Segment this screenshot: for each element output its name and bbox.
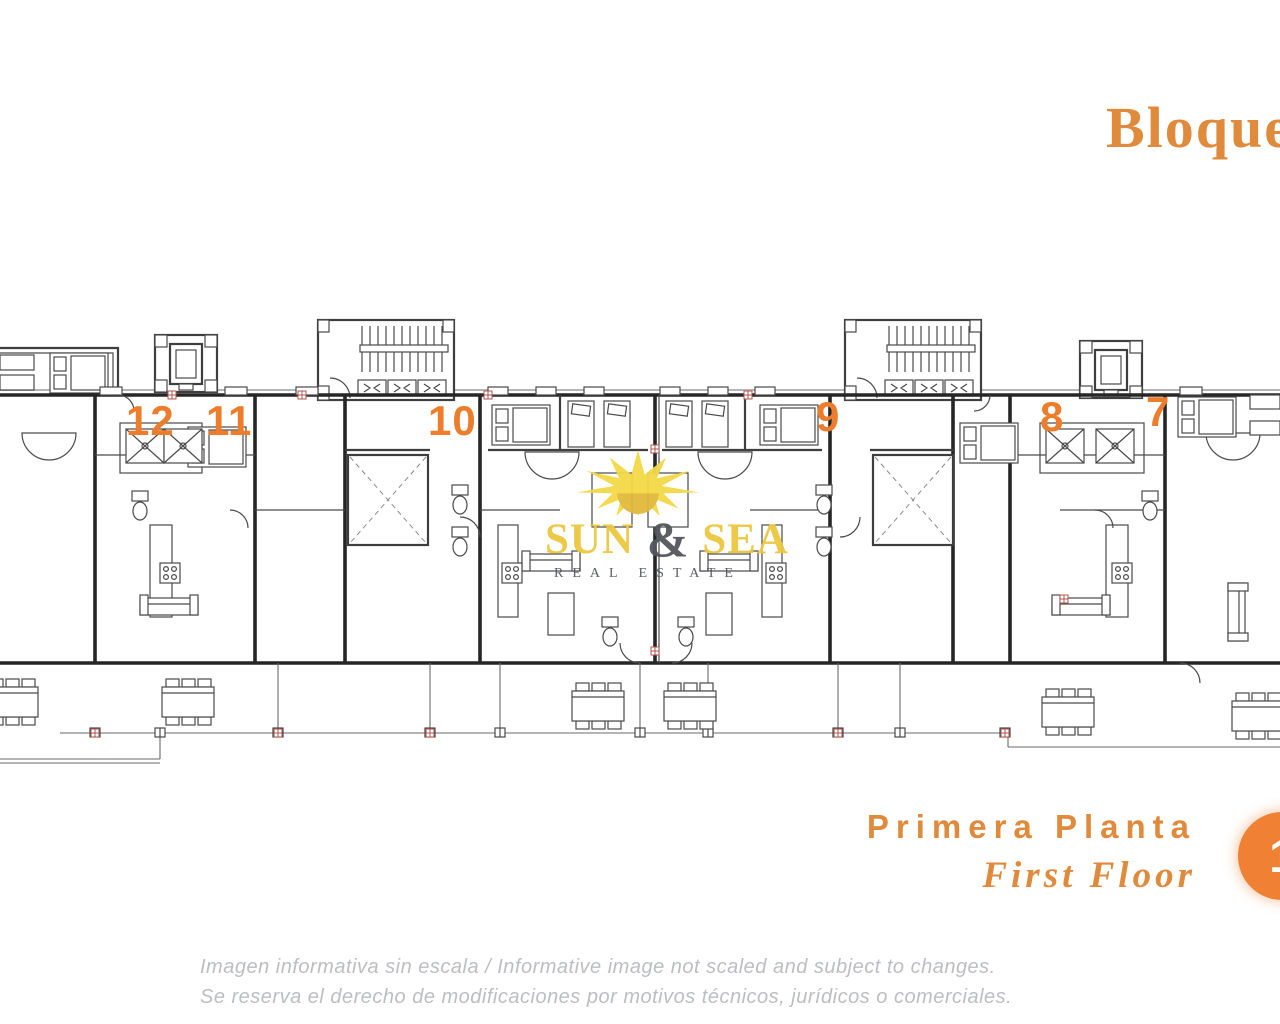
unit-number-7: 7 [1146, 391, 1170, 433]
floor-number-badge: 1 [1238, 812, 1280, 900]
unit-number-9: 9 [816, 396, 840, 438]
disclaimer-line-1: Imagen informativa sin escala / Informat… [200, 952, 1012, 982]
disclaimer: Imagen informativa sin escala / Informat… [200, 952, 1012, 1012]
sun-icon [558, 450, 718, 516]
floor-label: Primera Planta First Floor [867, 808, 1196, 897]
unit-number-10: 10 [428, 400, 477, 442]
unit-number-11: 11 [206, 400, 252, 442]
unit-number-12: 12 [126, 400, 175, 442]
logo-wordmark: SUN & SEA [545, 510, 731, 563]
disclaimer-line-2: Se reserva el derecho de modificaciones … [200, 982, 1012, 1012]
block-title: Bloque [1106, 94, 1280, 161]
sun-and-sea-watermark: SUN & SEA REAL ESTATE [545, 450, 731, 582]
unit-number-8: 8 [1040, 396, 1064, 438]
floor-label-english: First Floor [867, 854, 1196, 897]
logo-tagline: REAL ESTATE [545, 566, 731, 582]
floor-label-spanish: Primera Planta [867, 808, 1196, 846]
logo-ampersand: & [646, 511, 691, 567]
floorplan-page: { "header": { "block_title": "Bloque" },… [0, 0, 1280, 1024]
logo-word-right: SEA [702, 516, 789, 563]
logo-word-left: SUN [545, 516, 634, 563]
